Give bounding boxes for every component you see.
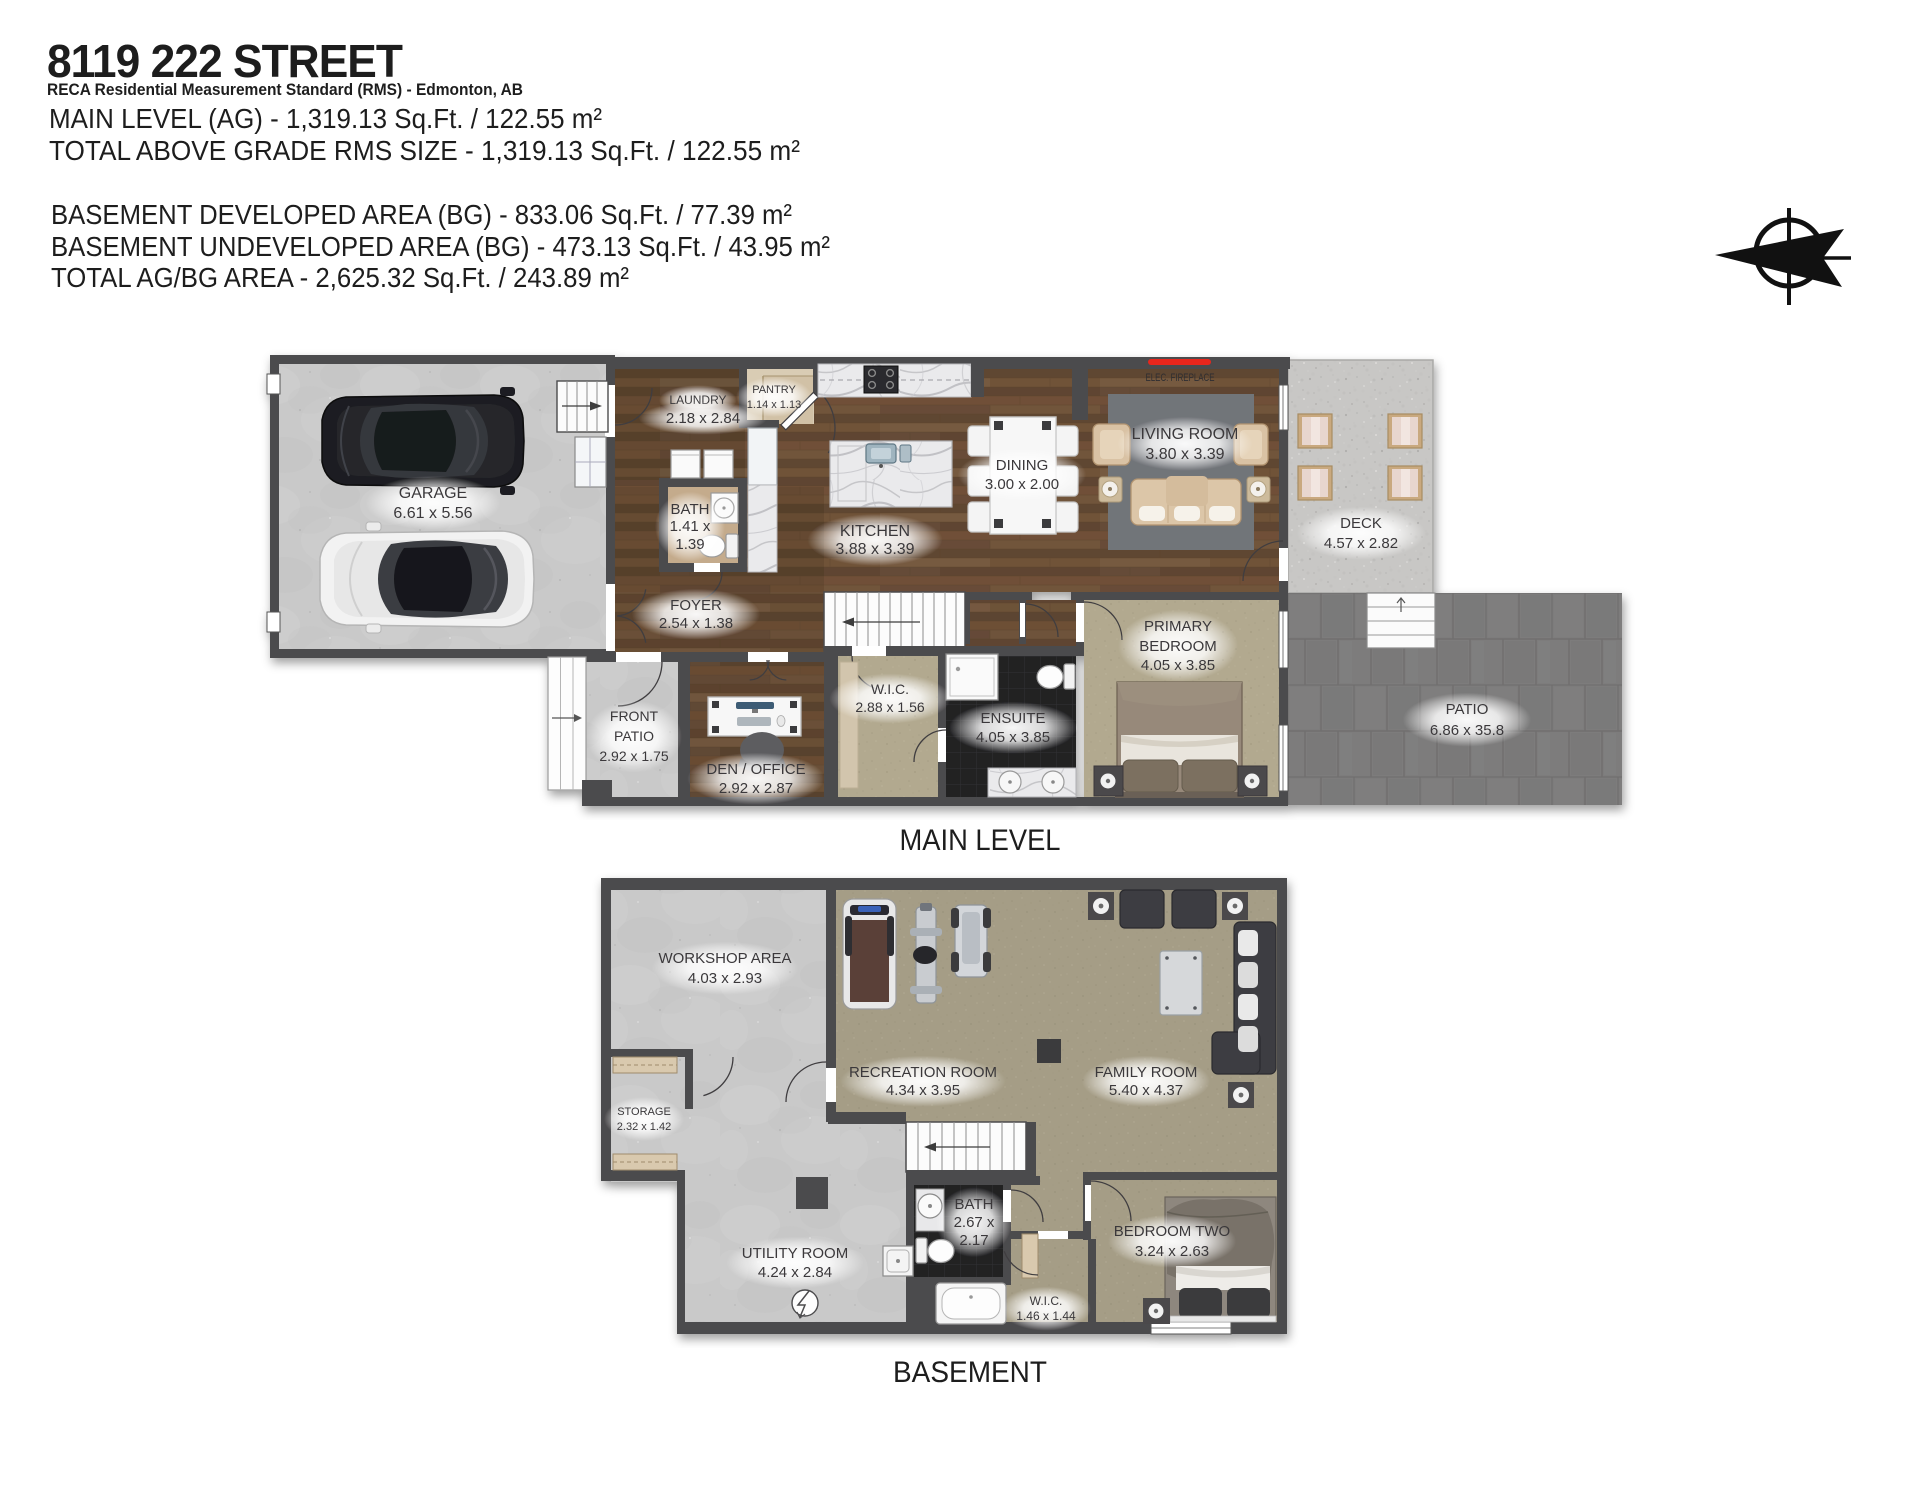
svg-text:BATH: BATH — [671, 501, 710, 518]
svg-text:4.03 x 2.93: 4.03 x 2.93 — [688, 970, 762, 987]
svg-text:5.40 x 4.37: 5.40 x 4.37 — [1109, 1082, 1183, 1099]
svg-text:2.67 x: 2.67 x — [954, 1214, 995, 1231]
svg-text:RECREATION ROOM: RECREATION ROOM — [849, 1064, 997, 1081]
svg-text:FOYER: FOYER — [670, 597, 722, 614]
svg-text:PATIO: PATIO — [1446, 701, 1489, 718]
svg-text:3.80 x 3.39: 3.80 x 3.39 — [1145, 446, 1224, 463]
svg-text:BEDROOM: BEDROOM — [1139, 638, 1217, 655]
svg-text:1.39: 1.39 — [675, 536, 704, 553]
svg-text:2.92 x 2.87: 2.92 x 2.87 — [719, 780, 793, 797]
svg-text:WORKSHOP AREA: WORKSHOP AREA — [658, 950, 791, 967]
svg-text:PRIMARY: PRIMARY — [1144, 618, 1212, 635]
svg-text:BEDROOM TWO: BEDROOM TWO — [1114, 1223, 1230, 1240]
svg-text:4.57 x 2.82: 4.57 x 2.82 — [1324, 535, 1398, 552]
svg-text:FRONT: FRONT — [610, 708, 659, 724]
svg-text:TOTAL AG/BG AREA - 2,625.32 Sq: TOTAL AG/BG AREA - 2,625.32 Sq.Ft. / 243… — [51, 262, 629, 293]
svg-text:BASEMENT DEVELOPED AREA (BG) -: BASEMENT DEVELOPED AREA (BG) - 833.06 Sq… — [51, 199, 792, 230]
svg-text:2.54 x 1.38: 2.54 x 1.38 — [659, 615, 733, 632]
svg-text:ELEC. FIREPLACE: ELEC. FIREPLACE — [1146, 372, 1215, 384]
svg-text:DINING: DINING — [996, 457, 1049, 474]
svg-text:2.92 x 1.75: 2.92 x 1.75 — [599, 748, 668, 764]
svg-text:DECK: DECK — [1340, 515, 1382, 532]
svg-text:W.I.C.: W.I.C. — [871, 681, 909, 697]
svg-text:1.14 x 1.13: 1.14 x 1.13 — [747, 399, 801, 411]
svg-text:MAIN LEVEL: MAIN LEVEL — [900, 824, 1061, 857]
svg-text:ENSUITE: ENSUITE — [980, 710, 1045, 727]
svg-text:LIVING ROOM: LIVING ROOM — [1132, 426, 1239, 443]
svg-text:UTILITY ROOM: UTILITY ROOM — [742, 1245, 848, 1262]
svg-text:TOTAL ABOVE GRADE RMS SIZE -: TOTAL ABOVE GRADE RMS SIZE - 1,319.13 Sq… — [49, 135, 800, 166]
svg-text:6.86 x 35.8: 6.86 x 35.8 — [1430, 722, 1504, 739]
svg-text:2.88 x 1.56: 2.88 x 1.56 — [855, 699, 924, 715]
svg-text:PATIO: PATIO — [614, 728, 654, 744]
svg-text:2.18 x 2.84: 2.18 x 2.84 — [666, 410, 740, 427]
svg-text:4.05 x 3.85: 4.05 x 3.85 — [976, 729, 1050, 746]
svg-text:6.61 x 5.56: 6.61 x 5.56 — [393, 505, 472, 522]
svg-text:1.46 x 1.44: 1.46 x 1.44 — [1016, 1309, 1076, 1323]
svg-text:1.41 x: 1.41 x — [670, 518, 711, 535]
svg-text:GARAGE: GARAGE — [399, 485, 467, 502]
svg-text:BASEMENT UNDEVELOPED AREA (BG): BASEMENT UNDEVELOPED AREA (BG) - 473.13 … — [51, 231, 830, 262]
svg-text:2.32 x 1.42: 2.32 x 1.42 — [617, 1121, 671, 1133]
svg-text:4.05 x 3.85: 4.05 x 3.85 — [1141, 657, 1215, 674]
svg-text:4.24 x 2.84: 4.24 x 2.84 — [758, 1264, 832, 1281]
svg-text:DEN / OFFICE: DEN / OFFICE — [706, 761, 805, 778]
svg-text:FAMILY ROOM: FAMILY ROOM — [1095, 1064, 1198, 1081]
svg-text:3.00 x 2.00: 3.00 x 2.00 — [985, 476, 1059, 493]
svg-text:BASEMENT: BASEMENT — [893, 1356, 1047, 1389]
svg-text:3.88 x 3.39: 3.88 x 3.39 — [835, 541, 914, 558]
svg-text:STORAGE: STORAGE — [617, 1106, 671, 1118]
svg-text:4.34 x 3.95: 4.34 x 3.95 — [886, 1082, 960, 1099]
svg-text:MAIN LEVEL (AG) - 1,319.13 Sq.: MAIN LEVEL (AG) - 1,319.13 Sq.Ft. / 122.… — [49, 103, 602, 134]
svg-text:2.17: 2.17 — [959, 1232, 988, 1249]
svg-text:BATH: BATH — [955, 1196, 994, 1213]
svg-text:KITCHEN: KITCHEN — [840, 523, 910, 540]
svg-text:W.I.C.: W.I.C. — [1030, 1294, 1063, 1308]
svg-text:3.24 x 2.63: 3.24 x 2.63 — [1135, 1243, 1209, 1260]
svg-text:PANTRY: PANTRY — [752, 384, 796, 396]
svg-text:RECA Residential Measurement S: RECA Residential Measurement Standard (R… — [47, 80, 523, 99]
